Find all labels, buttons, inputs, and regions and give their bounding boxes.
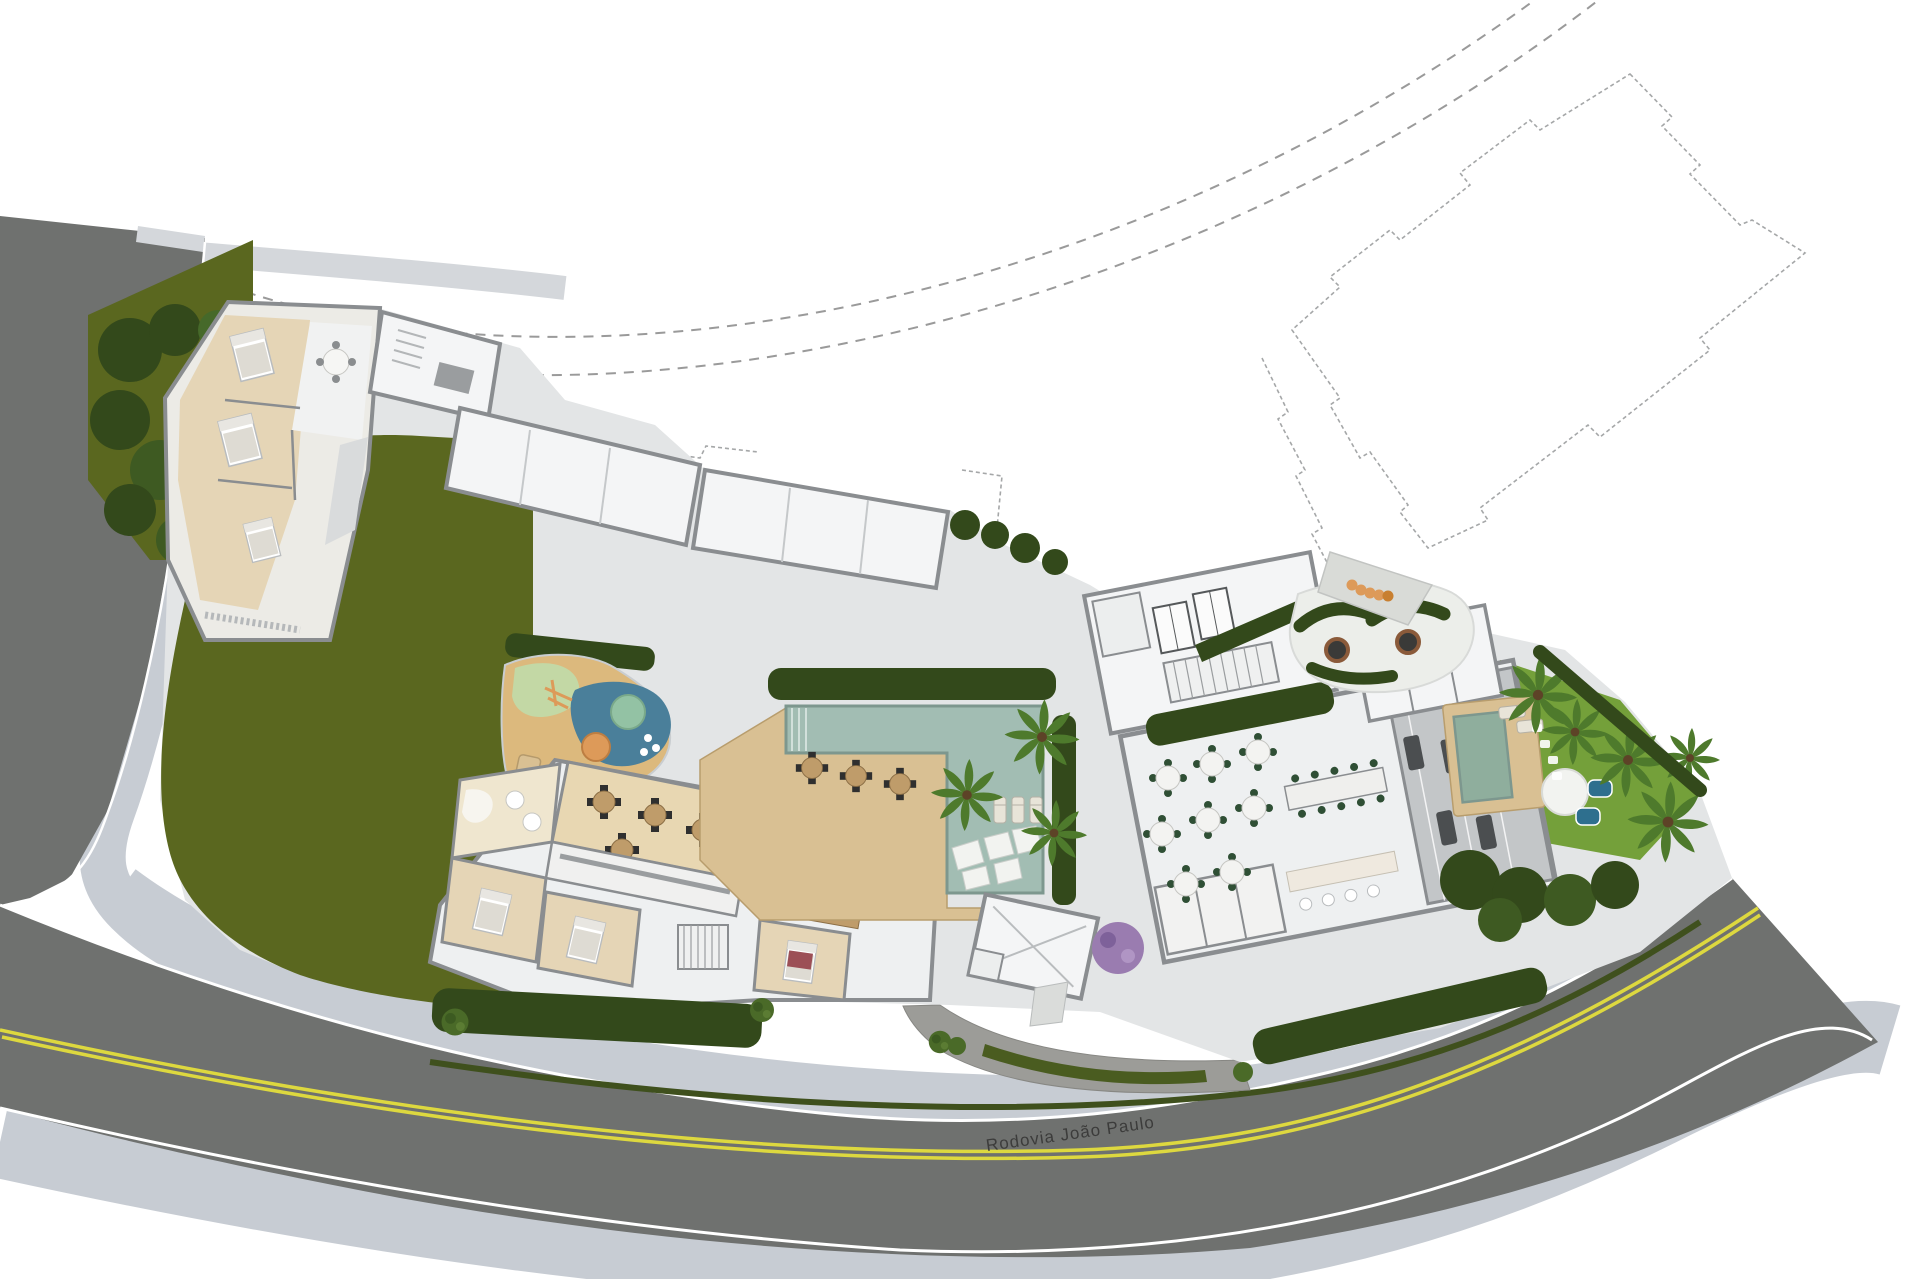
pool-north-hedge	[768, 668, 1056, 700]
play-dome-orange	[582, 733, 610, 761]
site-plan-canvas: Rodovia João Paulo	[0, 0, 1920, 1279]
hedge	[90, 390, 150, 450]
hedge	[149, 304, 201, 356]
maroon-bedding	[787, 950, 813, 969]
spa-lap-pool	[1454, 712, 1513, 803]
plunge-pool	[1588, 780, 1612, 797]
kids-room	[452, 764, 560, 858]
purple-tree-shade	[1100, 932, 1116, 948]
purple-tree-highlight	[1121, 949, 1135, 963]
median-shrub	[1233, 1062, 1253, 1082]
plunge-pool	[1576, 808, 1600, 825]
core-room	[1092, 592, 1150, 656]
kids-table	[523, 813, 541, 831]
amenities-stairs	[678, 925, 728, 969]
purple-flowering-tree	[1092, 922, 1144, 974]
bush-icon	[929, 1031, 952, 1054]
kids-table	[506, 791, 524, 809]
site-plan-rendering: Rodovia João Paulo	[0, 0, 1920, 1279]
bush-icon	[750, 998, 774, 1022]
play-dome-teal	[611, 695, 645, 729]
entrance-walkway	[1030, 982, 1068, 1026]
bush-icon	[442, 1009, 469, 1036]
fire-pit	[1326, 639, 1348, 661]
fire-pit	[1397, 631, 1419, 653]
hedge	[104, 484, 156, 536]
